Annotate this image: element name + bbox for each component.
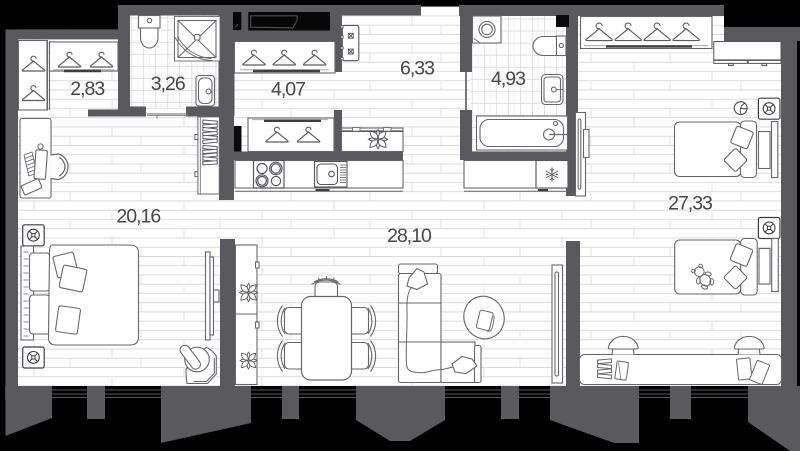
svg-text:4,07: 4,07 (271, 79, 305, 101)
svg-text:2,83: 2,83 (70, 78, 104, 100)
svg-text:27,33: 27,33 (668, 193, 712, 215)
svg-text:28,10: 28,10 (387, 225, 432, 247)
svg-text:20,16: 20,16 (116, 206, 160, 228)
svg-text:6,33: 6,33 (400, 58, 434, 80)
svg-text:4,93: 4,93 (491, 68, 525, 90)
svg-text:3,26: 3,26 (151, 73, 185, 95)
